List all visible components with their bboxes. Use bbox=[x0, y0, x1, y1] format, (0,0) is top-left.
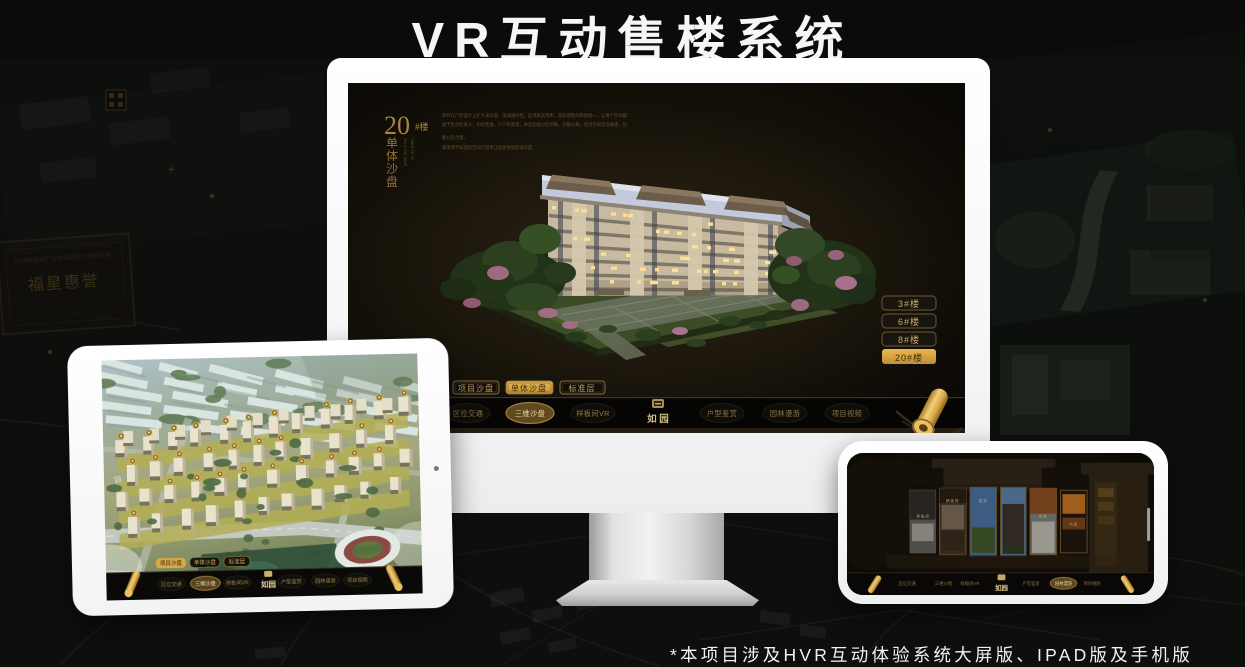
svg-text:沙: 沙 bbox=[386, 162, 398, 176]
svg-text:紧凑而不局促的空间尺度更让居住体验舒适有度。: 紧凑而不局促的空间尺度更让居住体验舒适有度。 bbox=[442, 144, 537, 151]
svg-text:项目视频: 项目视频 bbox=[1083, 580, 1101, 587]
svg-text:3#楼: 3#楼 bbox=[898, 298, 920, 309]
svg-text:区位交通: 区位交通 bbox=[898, 580, 916, 587]
svg-text:书 房: 书 房 bbox=[1069, 521, 1078, 526]
svg-text:项目沙盘: 项目沙盘 bbox=[458, 383, 494, 393]
svg-text:TABLE OF 20: TABLE OF 20 bbox=[410, 138, 414, 160]
svg-text:项目视频: 项目视频 bbox=[832, 409, 862, 418]
svg-text:项目在户型设计上扩大采光面、强调通风性，追求高实用率、高舒适: 项目在户型设计上扩大采光面、强调通风性，追求高实用率、高舒适性的和谐统一，让每个… bbox=[442, 112, 627, 119]
svg-text:户型鉴赏: 户型鉴赏 bbox=[1022, 580, 1040, 587]
svg-text:如 园: 如 园 bbox=[647, 413, 669, 425]
svg-text:三维沙盘: 三维沙盘 bbox=[515, 409, 545, 418]
svg-text:单体沙盘: 单体沙盘 bbox=[511, 383, 547, 393]
svg-text:VILLA THE SAND: VILLA THE SAND bbox=[403, 138, 407, 167]
svg-text:赋予生活的意义，均好性强，户户有景观，并且功能分区明确，动静: 赋予生活的意义，均好性强，户户有景观，并且功能分区明确，动静分离，室内空间灵活通… bbox=[442, 121, 627, 128]
svg-text:6#楼: 6#楼 bbox=[898, 316, 920, 327]
svg-text:区位交通: 区位交通 bbox=[453, 409, 483, 418]
svg-text:三维沙盘: 三维沙盘 bbox=[935, 580, 953, 587]
svg-text:精 装 修: 精 装 修 bbox=[946, 498, 959, 503]
svg-text:园林漫游: 园林漫游 bbox=[770, 409, 800, 418]
svg-text:样 板 间: 样 板 间 bbox=[916, 514, 929, 519]
svg-text:20#楼: 20#楼 bbox=[895, 352, 923, 363]
svg-text:实 景: 实 景 bbox=[1039, 514, 1048, 519]
svg-text:能分区合理，: 能分区合理， bbox=[442, 134, 468, 141]
svg-text:户型鉴赏: 户型鉴赏 bbox=[707, 409, 737, 418]
svg-text:8#楼: 8#楼 bbox=[898, 334, 920, 345]
svg-text:#楼: #楼 bbox=[415, 121, 429, 132]
svg-text:园林漫游: 园林漫游 bbox=[1055, 580, 1073, 587]
svg-text:盘: 盘 bbox=[386, 174, 398, 189]
svg-text:样板间VR: 样板间VR bbox=[961, 580, 980, 587]
svg-text:体: 体 bbox=[386, 149, 398, 163]
svg-text:如园: 如园 bbox=[995, 583, 1008, 592]
svg-text:样板间VR: 样板间VR bbox=[576, 409, 610, 418]
svg-text:如园: 如园 bbox=[261, 579, 277, 589]
svg-text:园 林: 园 林 bbox=[979, 498, 988, 503]
svg-text:标准层: 标准层 bbox=[569, 383, 596, 393]
svg-text:单: 单 bbox=[386, 136, 398, 150]
